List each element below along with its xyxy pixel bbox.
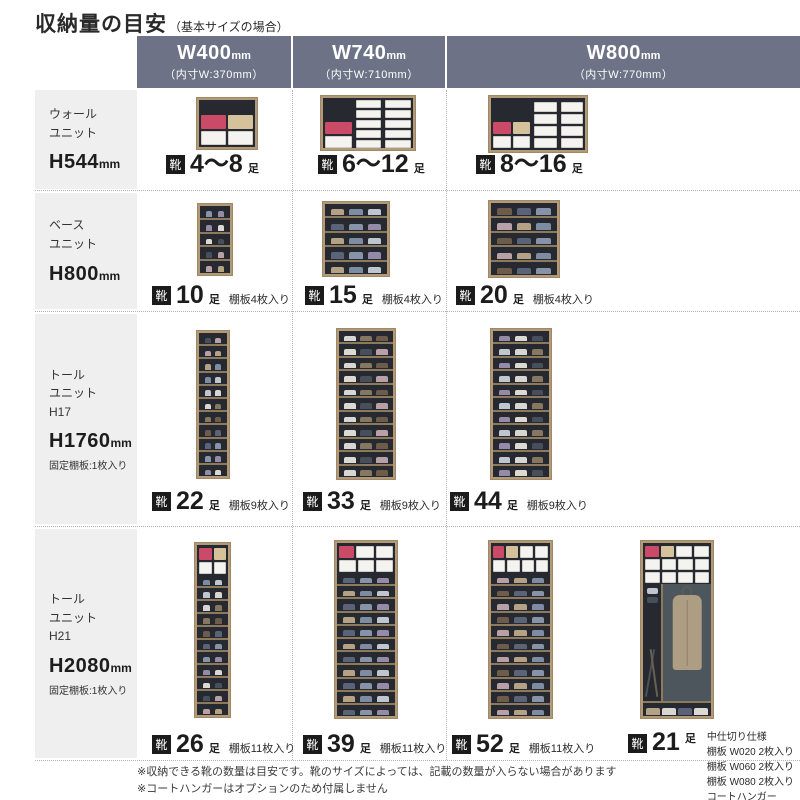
column-width-unit: mm bbox=[641, 50, 661, 62]
capacity-count: 44 bbox=[474, 489, 502, 514]
column-width: W740 bbox=[332, 42, 386, 65]
capacity-label: 靴 33 足 棚板9枚入り bbox=[303, 489, 441, 514]
capacity-unit: 足 bbox=[509, 740, 520, 756]
unit-name-line: H17 bbox=[49, 403, 137, 422]
capacity-label: 靴 44 足 棚板9枚入り bbox=[450, 489, 588, 514]
capacity-note: 棚板9枚入り bbox=[229, 497, 290, 513]
coat-unit-note-line: 棚板 W080 2枚入り bbox=[707, 775, 794, 790]
coat-unit-note-line: 中仕切り仕様 bbox=[707, 730, 794, 745]
capacity-unit: 足 bbox=[572, 160, 583, 176]
shoe-badge: 靴 bbox=[476, 155, 495, 174]
capacity-label: 靴 6～12 足 bbox=[318, 152, 425, 177]
row-divider bbox=[35, 526, 800, 527]
capacity-count: 39 bbox=[327, 732, 355, 757]
capacity-note: 棚板4枚入り bbox=[382, 291, 443, 307]
unit-height: H2080mm bbox=[49, 655, 137, 678]
cabinet-image-tall-h21-w740 bbox=[334, 540, 398, 719]
shoe-badge: 靴 bbox=[152, 286, 171, 305]
capacity-label: 靴 15 足 棚板4枚入り bbox=[305, 283, 443, 308]
shoe-badge: 靴 bbox=[152, 735, 171, 754]
capacity-note: 棚板11枚入り bbox=[529, 740, 595, 756]
column-width: W400 bbox=[177, 42, 231, 65]
capacity-label-coat-unit: 靴 21 足 中仕切り仕様 棚板 W020 2枚入り 棚板 W060 2枚入り … bbox=[628, 730, 794, 800]
capacity-unit: 足 bbox=[362, 291, 373, 307]
capacity-label: 靴 39 足 棚板11枚入り bbox=[303, 732, 446, 757]
unit-name: ウォール ユニット bbox=[49, 105, 137, 142]
cabinet-image-wall-w740 bbox=[320, 95, 416, 151]
coat-unit-notes: 中仕切り仕様 棚板 W020 2枚入り 棚板 W060 2枚入り 棚板 W080… bbox=[707, 730, 794, 800]
capacity-count: 20 bbox=[480, 283, 508, 308]
unit-name: ベース ユニット bbox=[49, 216, 137, 253]
page-title-main: 収納量の目安 bbox=[35, 8, 167, 38]
capacity-note: 棚板4枚入り bbox=[229, 291, 290, 307]
unit-height: H544mm bbox=[49, 151, 137, 174]
row-divider bbox=[35, 190, 800, 191]
column-inner-width: （内寸W:710mm） bbox=[319, 66, 418, 82]
shoe-badge: 靴 bbox=[450, 492, 469, 511]
cabinet-image-wall-w400 bbox=[196, 97, 258, 150]
coat-unit-note-line: コートハンガー bbox=[707, 790, 794, 800]
cabinet-image-wall-w800 bbox=[488, 95, 588, 153]
capacity-label: 靴 20 足 棚板4枚入り bbox=[456, 283, 594, 308]
cabinet-image-tall-h17-w800 bbox=[490, 328, 552, 480]
capacity-count: 26 bbox=[176, 732, 204, 757]
row-divider bbox=[35, 311, 800, 312]
unit-name-line: H21 bbox=[49, 627, 137, 646]
capacity-unit: 足 bbox=[209, 497, 220, 513]
capacity-unit: 足 bbox=[248, 160, 259, 176]
capacity-unit: 足 bbox=[414, 160, 425, 176]
unit-name: トール ユニット H17 bbox=[49, 366, 137, 422]
capacity-unit: 足 bbox=[209, 740, 220, 756]
unit-fixed-shelf-note: 固定棚板:1枚入り bbox=[49, 682, 137, 697]
capacity-unit: 足 bbox=[685, 730, 696, 746]
cabinet-image-tall-h21-coat-hanger bbox=[640, 540, 714, 719]
unit-name: トール ユニット H21 bbox=[49, 590, 137, 646]
capacity-unit: 足 bbox=[507, 497, 518, 513]
capacity-label: 靴 4～8 足 bbox=[166, 152, 259, 177]
column-inner-width: （内寸W:770mm） bbox=[574, 66, 673, 82]
capacity-count: 15 bbox=[329, 283, 357, 308]
capacity-label: 靴 10 足 棚板4枚入り bbox=[152, 283, 290, 308]
capacity-count: 4～8 bbox=[190, 152, 243, 177]
capacity-label: 靴 26 足 棚板11枚入り bbox=[152, 732, 295, 757]
capacity-note: 棚板9枚入り bbox=[380, 497, 441, 513]
page-title-sub: （基本サイズの場合） bbox=[169, 18, 289, 35]
cabinet-image-tall-h21-w800 bbox=[488, 540, 553, 719]
capacity-unit: 足 bbox=[513, 291, 524, 307]
page-title: 収納量の目安 （基本サイズの場合） bbox=[35, 8, 289, 38]
row-header-wall-unit: ウォール ユニット H544mm bbox=[35, 90, 137, 189]
column-inner-width: （内寸W:370mm） bbox=[164, 66, 263, 82]
shoe-badge: 靴 bbox=[305, 286, 324, 305]
column-header-w740: W740mm （内寸W:710mm） bbox=[293, 36, 445, 88]
capacity-note: 棚板11枚入り bbox=[380, 740, 446, 756]
unit-name-line: ユニット bbox=[49, 609, 137, 628]
shoe-badge: 靴 bbox=[318, 155, 337, 174]
shoe-badge: 靴 bbox=[303, 492, 322, 511]
capacity-count: 8～16 bbox=[500, 152, 567, 177]
capacity-label: 靴 22 足 棚板9枚入り bbox=[152, 489, 290, 514]
cabinet-image-tall-h17-w400 bbox=[196, 330, 230, 479]
unit-name-line: ウォール bbox=[49, 105, 137, 124]
column-width-unit: mm bbox=[231, 50, 251, 62]
unit-height: H1760mm bbox=[49, 430, 137, 453]
capacity-note: 棚板4枚入り bbox=[533, 291, 594, 307]
row-header-tall-unit-h17: トール ユニット H17 H1760mm 固定棚板:1枚入り bbox=[35, 314, 137, 524]
unit-name-line: ベース bbox=[49, 216, 137, 235]
capacity-note: 棚板11枚入り bbox=[229, 740, 295, 756]
footnote-line: ※収納できる靴の数量は目安です。靴のサイズによっては、記載の数量が入らない場合が… bbox=[137, 764, 616, 781]
shoe-badge: 靴 bbox=[303, 735, 322, 754]
capacity-note: 棚板9枚入り bbox=[527, 497, 588, 513]
column-width-unit: mm bbox=[386, 50, 406, 62]
capacity-label: 靴 52 足 棚板11枚入り bbox=[452, 732, 595, 757]
cabinet-image-base-w400 bbox=[197, 203, 233, 276]
capacity-unit: 足 bbox=[360, 497, 371, 513]
unit-height: H800mm bbox=[49, 263, 137, 286]
cabinet-image-base-w800 bbox=[488, 200, 560, 278]
shoe-badge: 靴 bbox=[628, 734, 647, 753]
capacity-unit: 足 bbox=[209, 291, 220, 307]
coat-unit-note-line: 棚板 W020 2枚入り bbox=[707, 745, 794, 760]
row-header-tall-unit-h21: トール ユニット H21 H2080mm 固定棚板:1枚入り bbox=[35, 529, 137, 758]
unit-name-line: ユニット bbox=[49, 124, 137, 143]
capacity-count: 33 bbox=[327, 489, 355, 514]
unit-fixed-shelf-note: 固定棚板:1枚入り bbox=[49, 457, 137, 472]
shoe-badge: 靴 bbox=[166, 155, 185, 174]
footnotes: ※収納できる靴の数量は目安です。靴のサイズによっては、記載の数量が入らない場合が… bbox=[137, 764, 616, 798]
capacity-count: 21 bbox=[652, 730, 680, 755]
shoe-badge: 靴 bbox=[456, 286, 475, 305]
capacity-label: 靴 8～16 足 bbox=[476, 152, 583, 177]
capacity-unit: 足 bbox=[360, 740, 371, 756]
capacity-count: 22 bbox=[176, 489, 204, 514]
storage-capacity-guide: 収納量の目安 （基本サイズの場合） W400mm （内寸W:370mm） W74… bbox=[0, 0, 800, 800]
unit-name-line: トール bbox=[49, 590, 137, 609]
cabinet-image-base-w740 bbox=[322, 201, 390, 277]
capacity-count: 52 bbox=[476, 732, 504, 757]
capacity-count: 6～12 bbox=[342, 152, 409, 177]
unit-name-line: トール bbox=[49, 366, 137, 385]
column-width: W800 bbox=[587, 42, 641, 65]
capacity-count: 10 bbox=[176, 283, 204, 308]
unit-name-line: ユニット bbox=[49, 384, 137, 403]
column-header-w800: W800mm （内寸W:770mm） bbox=[447, 36, 800, 88]
row-header-base-unit: ベース ユニット H800mm bbox=[35, 193, 137, 309]
shoe-badge: 靴 bbox=[152, 492, 171, 511]
column-header-w400: W400mm （内寸W:370mm） bbox=[137, 36, 291, 88]
unit-name-line: ユニット bbox=[49, 235, 137, 254]
coat-unit-note-line: 棚板 W060 2枚入り bbox=[707, 760, 794, 775]
cabinet-image-tall-h21-w400 bbox=[194, 542, 231, 718]
cabinet-image-tall-h17-w740 bbox=[336, 328, 396, 480]
shoe-badge: 靴 bbox=[452, 735, 471, 754]
footnote-line: ※コートハンガーはオプションのため付属しません bbox=[137, 781, 616, 798]
